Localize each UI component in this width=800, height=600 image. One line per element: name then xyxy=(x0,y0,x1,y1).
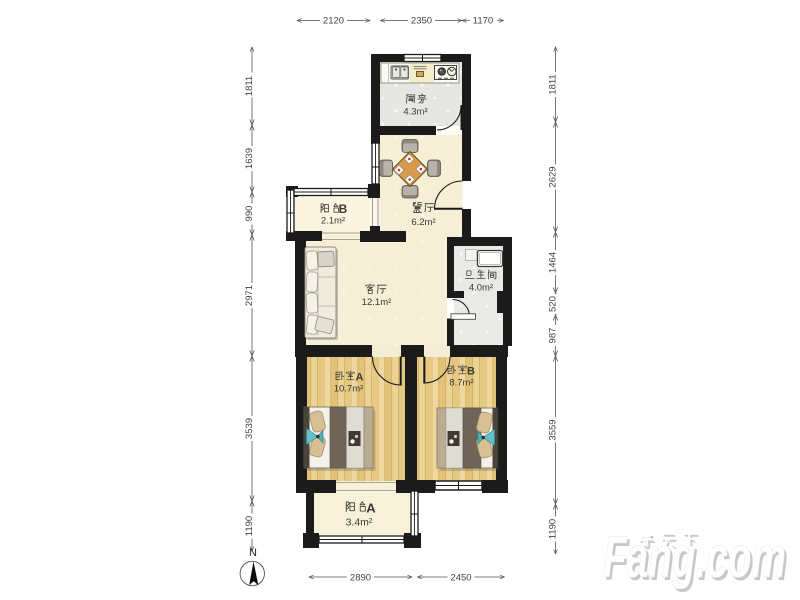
svg-text:4.3m²: 4.3m² xyxy=(403,107,427,118)
svg-text:2350: 2350 xyxy=(411,16,432,27)
svg-text:990: 990 xyxy=(244,206,255,222)
svg-text:1811: 1811 xyxy=(548,74,559,94)
svg-text:520: 520 xyxy=(548,296,559,312)
svg-text:1811: 1811 xyxy=(244,76,255,96)
svg-text:12.1m²: 12.1m² xyxy=(362,297,392,308)
svg-text:B: B xyxy=(339,202,348,216)
svg-text:3.4m²: 3.4m² xyxy=(346,517,373,529)
svg-text:A: A xyxy=(366,501,376,516)
svg-text:987: 987 xyxy=(548,328,559,344)
svg-text:1639: 1639 xyxy=(244,148,255,169)
svg-text:Fang.com: Fang.com xyxy=(603,526,786,590)
svg-text:2.1m²: 2.1m² xyxy=(321,216,345,227)
svg-text:3539: 3539 xyxy=(244,418,255,439)
svg-text:8.7m²: 8.7m² xyxy=(449,378,473,389)
svg-text:B: B xyxy=(467,365,475,377)
svg-text:3559: 3559 xyxy=(548,419,559,440)
svg-text:1190: 1190 xyxy=(244,516,255,536)
svg-text:1464: 1464 xyxy=(548,252,559,273)
svg-text:6.2m²: 6.2m² xyxy=(411,217,435,228)
svg-text:2629: 2629 xyxy=(548,166,559,187)
svg-text:2120: 2120 xyxy=(323,16,344,27)
svg-text:2890: 2890 xyxy=(350,573,371,584)
svg-text:A: A xyxy=(356,371,364,383)
svg-text:1190: 1190 xyxy=(548,519,559,539)
svg-text:2450: 2450 xyxy=(450,573,471,584)
svg-text:1170: 1170 xyxy=(473,16,493,27)
svg-text:N: N xyxy=(249,547,257,559)
svg-text:4.0m²: 4.0m² xyxy=(469,283,493,294)
svg-text:10.7m²: 10.7m² xyxy=(334,384,364,395)
svg-text:2971: 2971 xyxy=(244,285,255,306)
